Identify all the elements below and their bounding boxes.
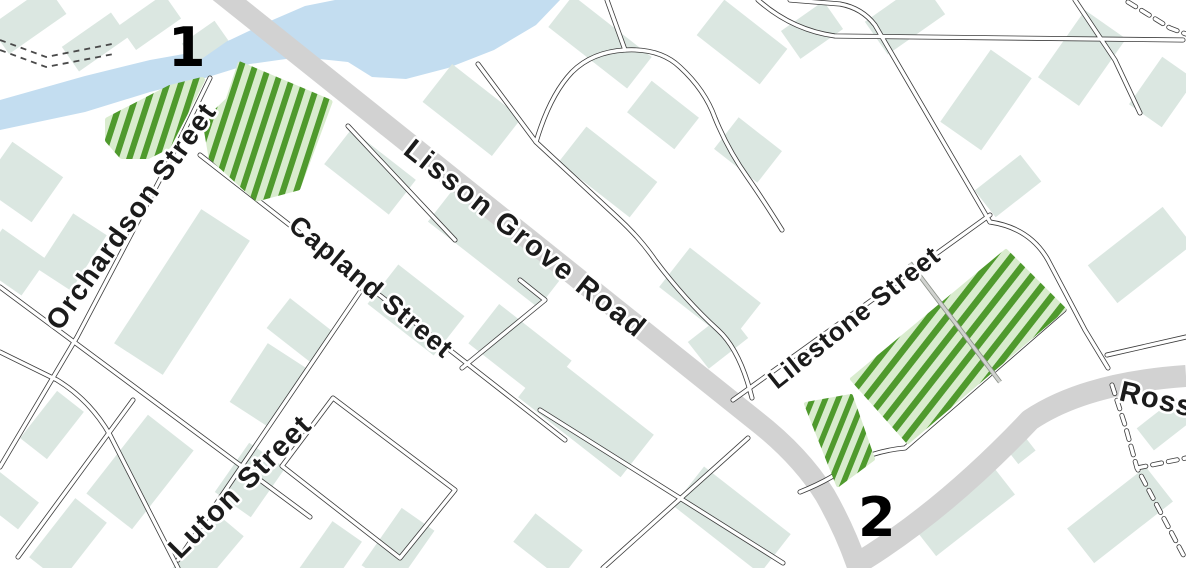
- street-line: [1137, 458, 1186, 468]
- building: [1088, 207, 1186, 303]
- building: [1129, 57, 1186, 127]
- building: [0, 228, 47, 295]
- building: [627, 81, 699, 149]
- building: [548, 0, 651, 89]
- label-luton-street: Luton Street: [162, 409, 318, 565]
- building: [29, 498, 107, 568]
- building: [975, 155, 1042, 218]
- street-line: [1107, 337, 1186, 355]
- building: [0, 471, 39, 530]
- map-canvas[interactable]: Lisson Grove Road Orchardson Street Capl…: [0, 0, 1186, 568]
- area-1-patch-east: [205, 64, 330, 199]
- building: [20, 391, 84, 459]
- map-svg: Lisson Grove Road Orchardson Street Capl…: [0, 0, 1186, 568]
- building: [298, 521, 362, 568]
- building: [513, 513, 582, 568]
- building: [673, 466, 790, 568]
- building: [62, 13, 128, 72]
- street-line: [1128, 2, 1186, 34]
- building: [1067, 467, 1173, 563]
- building: [559, 127, 658, 218]
- building: [0, 142, 63, 223]
- building: [423, 64, 522, 156]
- street-line: [540, 410, 783, 563]
- building: [86, 415, 193, 530]
- building: [518, 355, 654, 478]
- area-marker-1: 1: [168, 16, 206, 79]
- building: [0, 0, 66, 54]
- area-marker-2: 2: [858, 486, 896, 549]
- building: [940, 50, 1031, 151]
- building: [714, 117, 782, 182]
